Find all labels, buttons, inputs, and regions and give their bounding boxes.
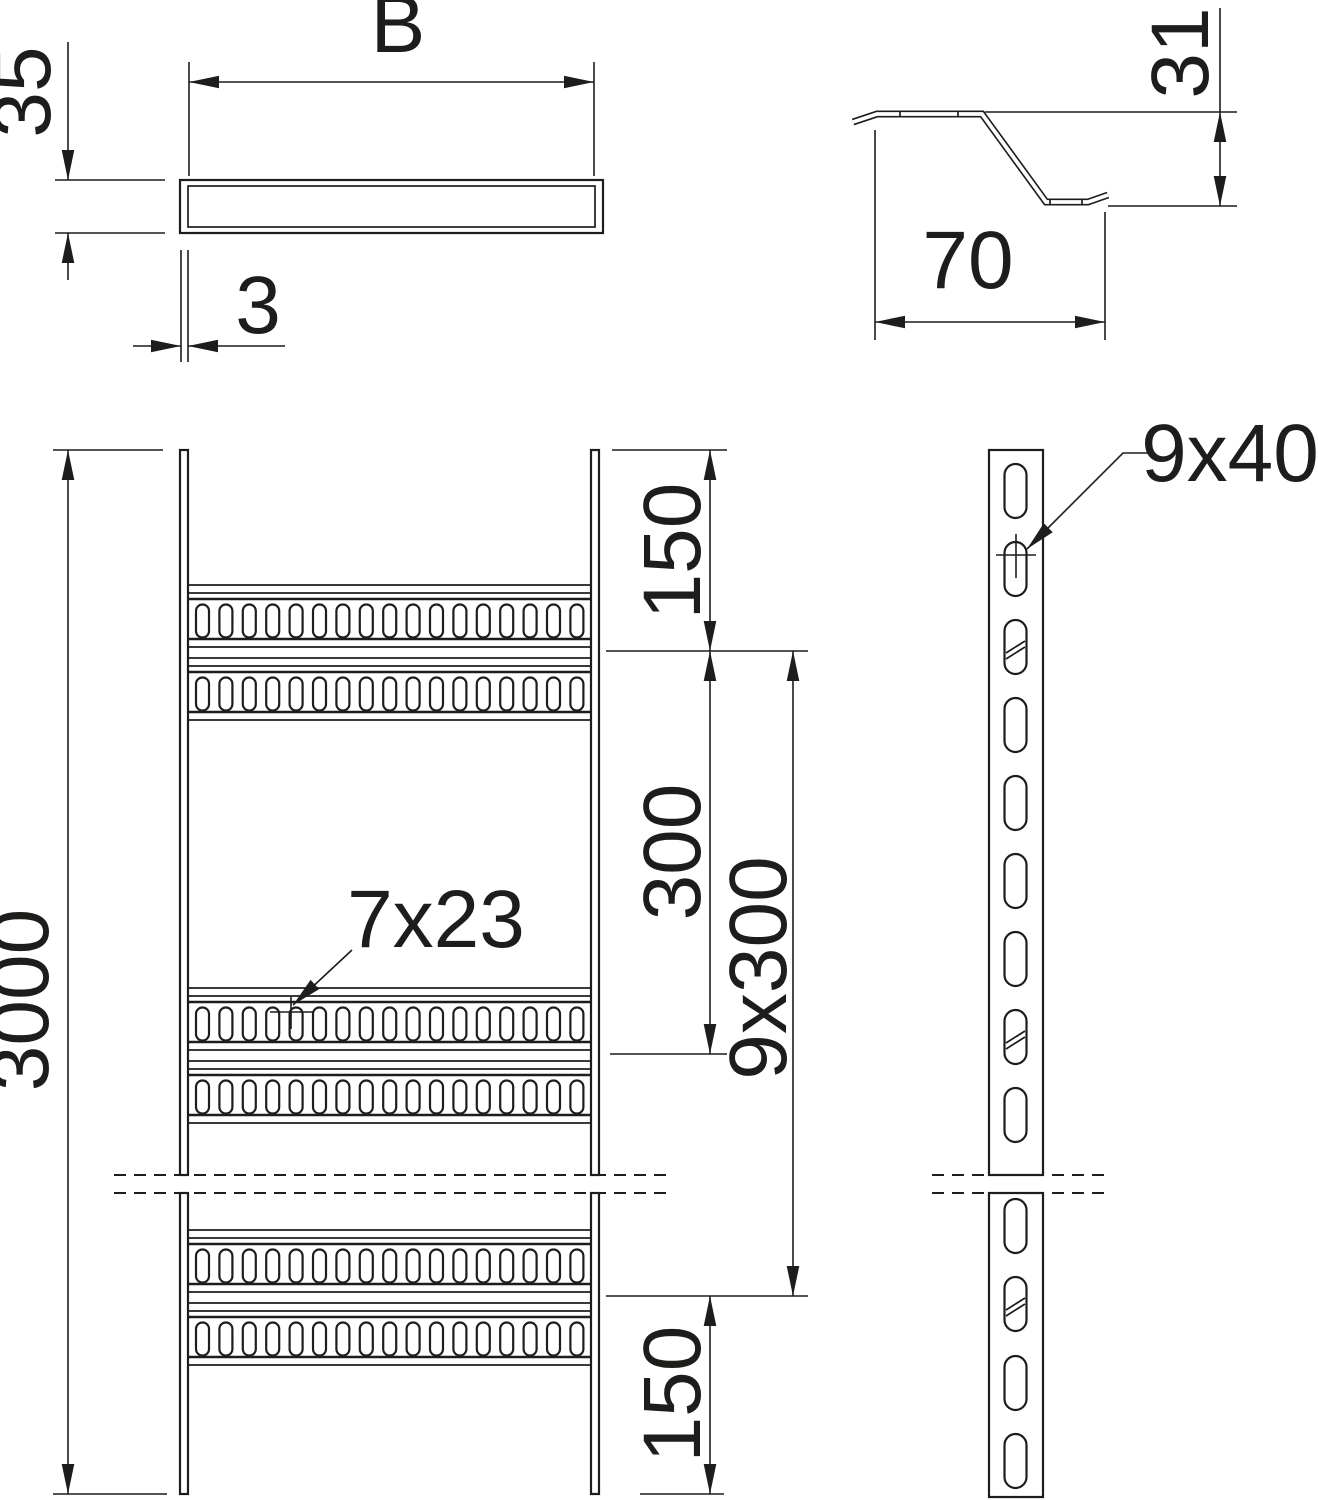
rung-slot bbox=[570, 605, 583, 638]
arrowhead bbox=[875, 316, 905, 329]
right-rail-lower bbox=[591, 1193, 599, 1494]
rung-slot bbox=[383, 1250, 396, 1283]
rung-slot bbox=[500, 1081, 513, 1114]
rung-slot bbox=[243, 1323, 256, 1356]
rung-slot bbox=[453, 678, 466, 711]
arrowhead bbox=[1075, 316, 1105, 329]
rung-slot bbox=[477, 1008, 490, 1041]
rung-slot bbox=[243, 1008, 256, 1041]
rung bbox=[188, 988, 591, 1050]
rung-slot bbox=[453, 605, 466, 638]
rung-slot bbox=[453, 1250, 466, 1283]
rung-slot bbox=[407, 1250, 420, 1283]
rung-slot bbox=[290, 1081, 303, 1114]
rung-slot bbox=[243, 1250, 256, 1283]
rung-slot bbox=[430, 678, 443, 711]
side-slot bbox=[1005, 932, 1027, 986]
rung-slot bbox=[383, 1008, 396, 1041]
rung-slot bbox=[500, 678, 513, 711]
side-slot bbox=[1005, 698, 1027, 752]
rung-slot bbox=[266, 1081, 279, 1114]
technical-drawing-page: B 35 3 31 70 bbox=[0, 0, 1318, 1500]
rung-slot bbox=[266, 1250, 279, 1283]
cross-section-outer bbox=[180, 180, 603, 233]
rung-slot bbox=[196, 1008, 209, 1041]
rung-slot bbox=[524, 605, 537, 638]
bottom-spacing-label: 150 bbox=[627, 1326, 718, 1463]
rung-slot bbox=[313, 1250, 326, 1283]
rung bbox=[188, 1061, 591, 1123]
rung-slot bbox=[500, 1250, 513, 1283]
right-rail-upper bbox=[591, 450, 599, 1175]
rung-slot bbox=[430, 1081, 443, 1114]
rung-slot bbox=[290, 1250, 303, 1283]
rung-slot bbox=[290, 605, 303, 638]
arrowhead bbox=[62, 1464, 75, 1494]
rung-slot bbox=[524, 678, 537, 711]
rung-slot bbox=[570, 678, 583, 711]
rung-slot bbox=[313, 1081, 326, 1114]
rung-slot bbox=[477, 1323, 490, 1356]
rung-slot bbox=[266, 678, 279, 711]
cross-section-view: B 35 3 bbox=[0, 0, 603, 362]
rung-slot-label: 7x23 bbox=[347, 874, 525, 965]
length-label: 3000 bbox=[0, 909, 66, 1091]
rung-height-label: 31 bbox=[1135, 7, 1226, 98]
rung-slot bbox=[219, 1250, 232, 1283]
rung-slot bbox=[383, 678, 396, 711]
rung-slot bbox=[360, 605, 373, 638]
rung-slot bbox=[430, 1008, 443, 1041]
rung-slot bbox=[570, 1323, 583, 1356]
rung-slot bbox=[336, 1008, 349, 1041]
rung-slot bbox=[360, 1323, 373, 1356]
rung-slot bbox=[219, 605, 232, 638]
rung-slot bbox=[266, 605, 279, 638]
arrowhead bbox=[188, 340, 218, 353]
rung-slot bbox=[219, 678, 232, 711]
arrowhead bbox=[564, 76, 594, 89]
ladder-front-view: 3000 150 300 9x300 150 7x23 bbox=[0, 450, 808, 1494]
rung-slot bbox=[290, 678, 303, 711]
rung-slot bbox=[547, 1323, 560, 1356]
rung-slot bbox=[547, 605, 560, 638]
left-rail-upper bbox=[180, 450, 188, 1175]
rung-slot bbox=[243, 1081, 256, 1114]
rung bbox=[188, 1230, 591, 1292]
rung-slot bbox=[547, 1250, 560, 1283]
rung-slot bbox=[383, 605, 396, 638]
rung-slot bbox=[360, 1008, 373, 1041]
rung-slot bbox=[524, 1008, 537, 1041]
arrowhead bbox=[62, 450, 75, 480]
rung-slot bbox=[360, 1250, 373, 1283]
rung-slot bbox=[360, 1081, 373, 1114]
rung-slot bbox=[336, 1323, 349, 1356]
rung-slot bbox=[453, 1323, 466, 1356]
arrowhead bbox=[62, 233, 75, 263]
rung bbox=[188, 1303, 591, 1365]
arrowhead bbox=[787, 651, 800, 681]
arrowhead bbox=[189, 76, 219, 89]
rung-width-label: 70 bbox=[922, 215, 1013, 306]
height-label: 35 bbox=[0, 46, 68, 137]
side-slot bbox=[1005, 1434, 1027, 1488]
rung-slot bbox=[266, 1323, 279, 1356]
rung-slot bbox=[570, 1008, 583, 1041]
rung-profile-outline bbox=[853, 114, 1108, 202]
arrowhead bbox=[704, 651, 717, 681]
left-rail-lower bbox=[180, 1193, 188, 1494]
rung-slot bbox=[313, 678, 326, 711]
rung-slot bbox=[313, 1008, 326, 1041]
rung-slot bbox=[453, 1081, 466, 1114]
side-rail-view: 9x40 bbox=[932, 408, 1318, 1497]
arrowhead bbox=[62, 150, 75, 180]
rung-slot bbox=[219, 1323, 232, 1356]
rung-slot bbox=[196, 605, 209, 638]
rung-slot bbox=[547, 678, 560, 711]
rung-slot bbox=[430, 1323, 443, 1356]
side-slot bbox=[1005, 464, 1027, 518]
rung-slot bbox=[500, 605, 513, 638]
cable-ladder-drawing: B 35 3 31 70 bbox=[0, 0, 1318, 1500]
rung-slot bbox=[360, 678, 373, 711]
rung-slot bbox=[407, 1323, 420, 1356]
rung-slot bbox=[219, 1081, 232, 1114]
rung bbox=[188, 658, 591, 720]
rung-slot bbox=[524, 1323, 537, 1356]
rung-slot bbox=[407, 1081, 420, 1114]
rung-slot bbox=[407, 605, 420, 638]
rung-slot bbox=[196, 1081, 209, 1114]
rungs bbox=[188, 585, 591, 1365]
rung-slot bbox=[383, 1323, 396, 1356]
rung-profile-view: 31 70 bbox=[853, 7, 1237, 340]
rung-slot bbox=[477, 1250, 490, 1283]
rung-slot bbox=[524, 1250, 537, 1283]
rung-slot bbox=[570, 1250, 583, 1283]
side-slot-label: 9x40 bbox=[1141, 408, 1318, 499]
rung-slot bbox=[430, 1250, 443, 1283]
rung-slot bbox=[500, 1323, 513, 1356]
rung-slot bbox=[336, 605, 349, 638]
rung-slot bbox=[383, 1081, 396, 1114]
pattern-spacing-label: 9x300 bbox=[713, 856, 804, 1079]
rung-slot bbox=[243, 678, 256, 711]
side-slot bbox=[1005, 1356, 1027, 1410]
rung-profile-core bbox=[853, 114, 1108, 202]
arrowhead bbox=[1214, 112, 1227, 142]
rung-slot bbox=[407, 1008, 420, 1041]
width-label: B bbox=[371, 0, 426, 70]
rung-slot bbox=[547, 1008, 560, 1041]
arrowhead bbox=[704, 450, 717, 480]
rung bbox=[188, 585, 591, 647]
rung-slot bbox=[477, 1081, 490, 1114]
rung-slot bbox=[290, 1323, 303, 1356]
thickness-label: 3 bbox=[235, 260, 281, 351]
rung-slot bbox=[196, 1250, 209, 1283]
rung-slot bbox=[336, 1081, 349, 1114]
arrowhead bbox=[1214, 176, 1227, 206]
rung-slot bbox=[430, 605, 443, 638]
rung-slot bbox=[500, 1008, 513, 1041]
rung-slot bbox=[570, 1081, 583, 1114]
arrowhead bbox=[787, 1266, 800, 1296]
side-slot bbox=[1005, 1088, 1027, 1142]
rung-slot bbox=[196, 1323, 209, 1356]
rung-slot bbox=[336, 1250, 349, 1283]
arrowhead bbox=[704, 621, 717, 651]
rung-slot bbox=[477, 605, 490, 638]
arrowhead bbox=[151, 340, 181, 353]
rung-slot bbox=[243, 605, 256, 638]
rung-slot bbox=[547, 1081, 560, 1114]
top-spacing-label: 150 bbox=[627, 483, 718, 620]
rung-slot bbox=[453, 1008, 466, 1041]
side-slot bbox=[1005, 854, 1027, 908]
rung-slot bbox=[407, 678, 420, 711]
side-slot bbox=[1005, 776, 1027, 830]
rung-slot bbox=[196, 678, 209, 711]
rung-slot bbox=[313, 1323, 326, 1356]
rung-slot bbox=[524, 1081, 537, 1114]
rung-slot bbox=[313, 605, 326, 638]
rung-spacing-label: 300 bbox=[627, 784, 718, 921]
arrowhead bbox=[704, 1464, 717, 1494]
rung-slot bbox=[219, 1008, 232, 1041]
arrowhead bbox=[704, 1296, 717, 1326]
rung-slot bbox=[336, 678, 349, 711]
side-slot bbox=[1005, 1199, 1027, 1253]
rung-slot bbox=[477, 678, 490, 711]
